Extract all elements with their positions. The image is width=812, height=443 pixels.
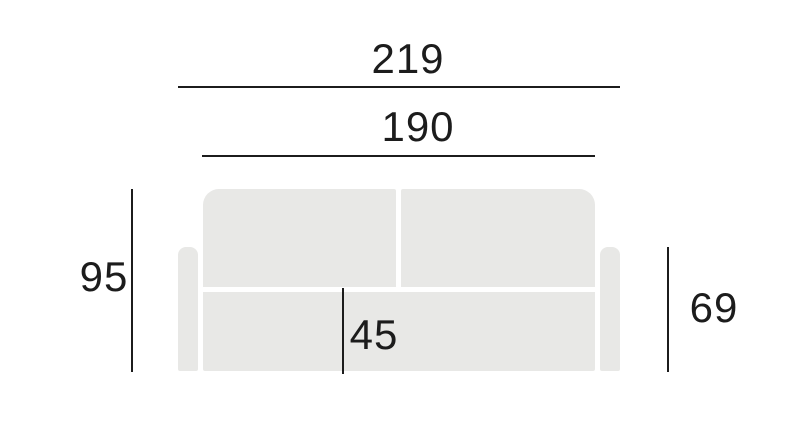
dimension-label-seat-height: 45 (350, 314, 399, 356)
dimension-line-seat-height (342, 288, 344, 374)
dimension-line-overall-height (131, 189, 133, 372)
dimension-label-overall-height: 95 (80, 256, 129, 298)
dimension-label-seat-width: 190 (381, 106, 454, 148)
sofa-seat (203, 292, 595, 371)
dimension-line-seat-width (202, 155, 595, 157)
sofa-dimension-diagram: 219 190 95 69 45 (0, 0, 812, 443)
sofa-right-armrest (600, 247, 620, 371)
dimension-line-armrest-height (667, 247, 669, 372)
sofa-backrest-left-cushion (203, 189, 396, 287)
dimension-line-overall-width (178, 86, 620, 88)
sofa-left-armrest (178, 247, 198, 371)
sofa-backrest-right-cushion (401, 189, 595, 287)
dimension-label-armrest-height: 69 (690, 287, 739, 329)
dimension-label-overall-width: 219 (371, 38, 444, 80)
